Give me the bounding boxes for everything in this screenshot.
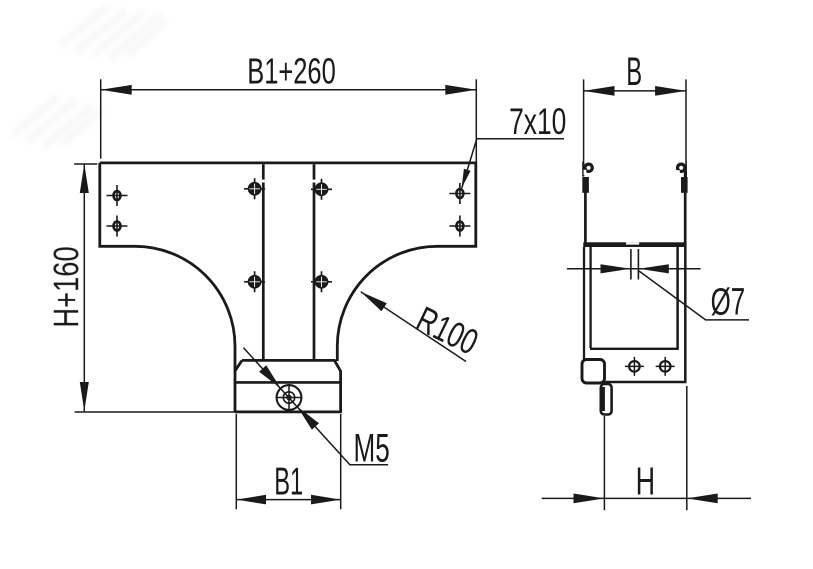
svg-text:7x10: 7x10: [509, 101, 566, 143]
svg-text:B1: B1: [274, 460, 303, 504]
svg-text:Ø7: Ø7: [711, 281, 746, 323]
svg-text:B: B: [626, 49, 642, 94]
svg-text:B1+260: B1+260: [247, 51, 336, 91]
svg-text:H: H: [636, 461, 655, 504]
svg-text:M5: M5: [353, 427, 389, 471]
svg-text:H+160: H+160: [47, 246, 86, 327]
